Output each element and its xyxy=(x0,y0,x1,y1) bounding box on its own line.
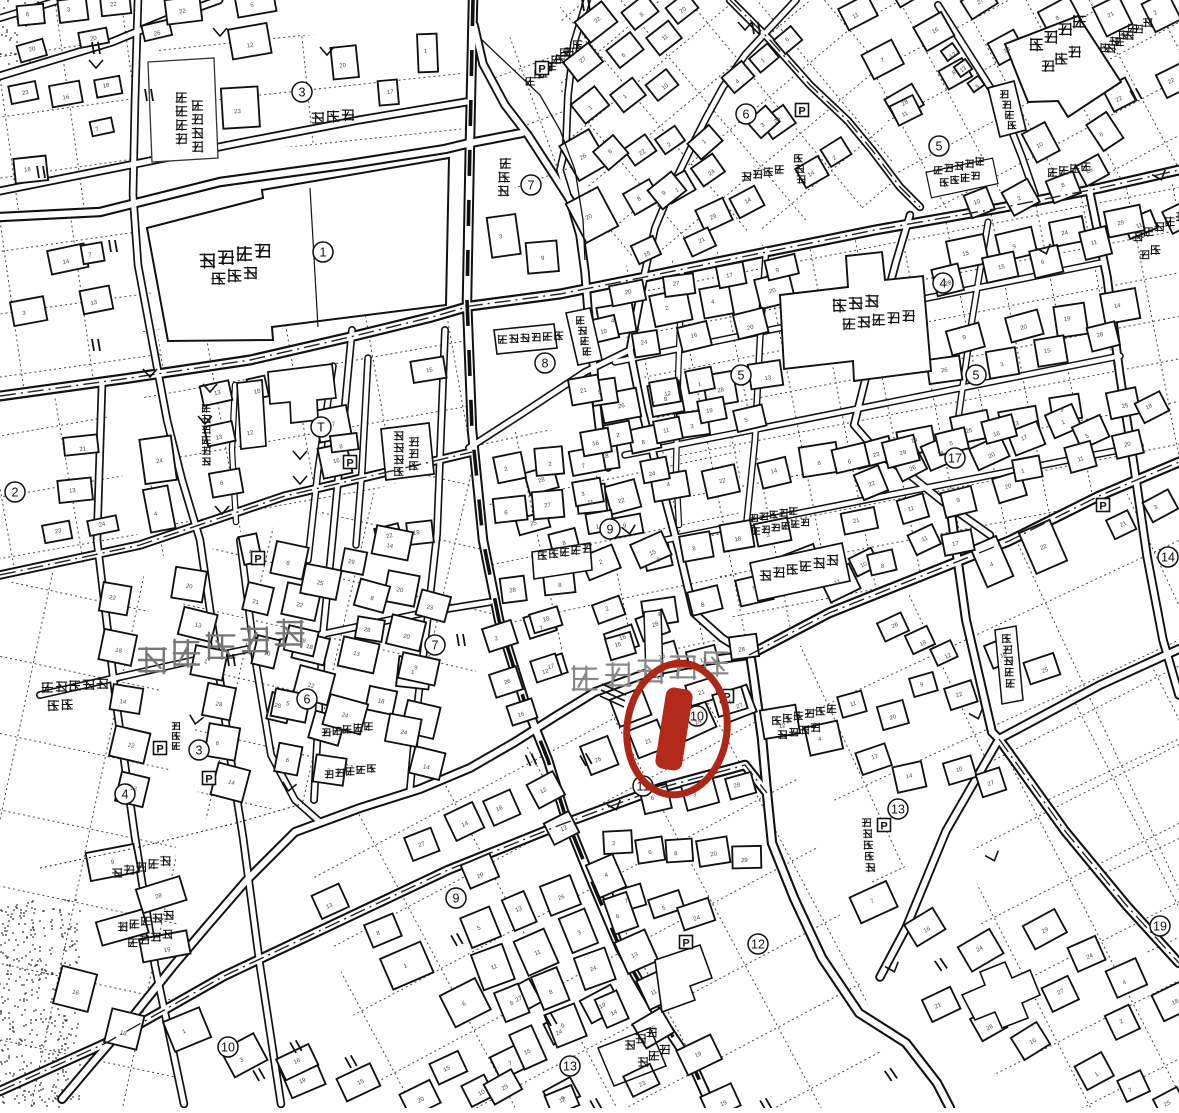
svg-text:5: 5 xyxy=(973,368,980,382)
svg-text:P: P xyxy=(156,743,163,755)
svg-text:8: 8 xyxy=(542,356,549,370)
svg-text:P: P xyxy=(254,553,261,565)
svg-text:17: 17 xyxy=(387,89,395,96)
svg-text:3: 3 xyxy=(299,85,306,99)
svg-text:13: 13 xyxy=(891,802,905,816)
svg-text:6: 6 xyxy=(304,692,311,706)
svg-text:P: P xyxy=(1099,500,1106,512)
svg-text:P: P xyxy=(682,937,689,949)
svg-text:5: 5 xyxy=(738,368,745,382)
svg-text:2: 2 xyxy=(12,485,19,499)
svg-text:19: 19 xyxy=(1153,919,1167,933)
svg-text:29: 29 xyxy=(741,858,748,864)
svg-text:17: 17 xyxy=(948,451,962,465)
svg-text:P: P xyxy=(538,63,545,75)
svg-text:14: 14 xyxy=(1161,550,1175,564)
svg-text:T: T xyxy=(317,420,325,434)
svg-text:18: 18 xyxy=(24,167,32,174)
svg-text:1: 1 xyxy=(320,245,327,259)
svg-text:7: 7 xyxy=(528,178,535,192)
svg-text:6: 6 xyxy=(743,107,750,121)
svg-text:7: 7 xyxy=(432,638,439,652)
svg-text:27: 27 xyxy=(544,503,552,510)
svg-text:13: 13 xyxy=(563,1059,577,1073)
svg-text:11: 11 xyxy=(587,500,594,507)
svg-text:21: 21 xyxy=(79,446,87,453)
svg-text:10: 10 xyxy=(221,1040,235,1054)
svg-text:P: P xyxy=(346,457,353,469)
svg-text:12: 12 xyxy=(751,937,765,951)
svg-text:P: P xyxy=(205,773,212,785)
svg-text:13: 13 xyxy=(69,488,77,495)
svg-text:P: P xyxy=(880,820,887,832)
svg-text:23: 23 xyxy=(234,109,242,115)
svg-text:4: 4 xyxy=(122,787,129,801)
svg-text:5: 5 xyxy=(936,139,943,153)
svg-text:9: 9 xyxy=(453,891,460,905)
svg-text:19: 19 xyxy=(413,530,421,537)
svg-text:3: 3 xyxy=(196,743,203,757)
svg-text:9: 9 xyxy=(607,522,614,536)
svg-text:20: 20 xyxy=(339,63,347,70)
svg-text:P: P xyxy=(798,105,805,117)
svg-text:22: 22 xyxy=(110,2,118,9)
